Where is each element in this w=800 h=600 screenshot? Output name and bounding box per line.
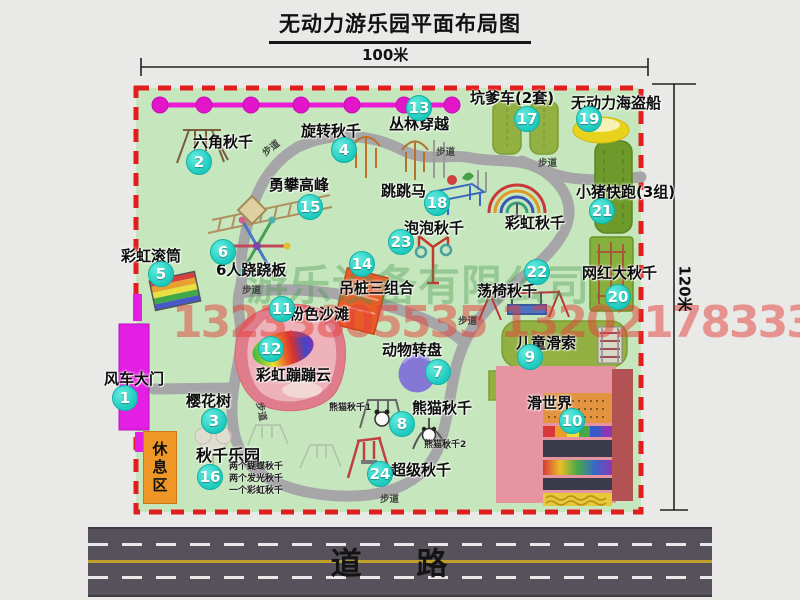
attraction-22-badge: 22 — [524, 259, 550, 285]
label-kart-track: 坑爹车(2套) — [470, 91, 554, 106]
label-super-swing: 超级秋千 — [391, 463, 451, 478]
rest-area-zone: 休息区 — [143, 431, 177, 504]
path-label-4: 步道 — [242, 286, 261, 296]
slide-world-drawing — [496, 366, 633, 506]
path-label-7: 步道 — [380, 495, 399, 505]
attraction-17-badge: 17 — [514, 106, 540, 132]
width-dimension-label: 100米 — [362, 44, 408, 65]
label-rainbow-swing: 彩虹秋千 — [505, 216, 565, 231]
road: 道 路 — [88, 527, 712, 597]
attraction-21-badge: 21 — [589, 198, 615, 224]
attraction-4-badge: 4 — [331, 137, 357, 163]
label-cherry-tree: 樱花树 — [186, 394, 231, 409]
label-climbing-peak: 勇攀高峰 — [269, 178, 329, 193]
label-hexagon-swing: 六角秋千 — [193, 135, 253, 150]
label-jumping-horse: 跳跳马 — [381, 184, 426, 199]
label-swing-chair: 荡椅秋千 — [477, 284, 537, 299]
label-big-swing: 网红大秋千 — [582, 266, 657, 281]
path-label-5: 步道 — [458, 317, 477, 327]
attraction-19-badge: 19 — [576, 106, 602, 132]
attraction-14-badge: 14 — [349, 251, 375, 277]
rest-area-label: 休息区 — [150, 441, 171, 495]
attraction-16-badge: 16 — [197, 464, 223, 490]
height-dimension-label: 120米 — [675, 265, 696, 311]
label-swing-park-item-3: 一个彩虹秋千 — [229, 487, 283, 496]
page-title: 无动力游乐园平面布局图 — [269, 8, 531, 44]
label-bubble-swing: 泡泡秋千 — [404, 221, 464, 236]
label-swing-park-item-1: 两个蝴蝶秋千 — [229, 463, 283, 472]
attraction-24-badge: 24 — [367, 461, 393, 487]
attraction-11-badge: 11 — [269, 296, 295, 322]
path-label-3: 步道 — [538, 159, 557, 169]
attraction-2-badge: 2 — [186, 149, 212, 175]
label-panda-swing-2: 熊猫秋千2 — [424, 441, 466, 450]
label-animal-carousel: 动物转盘 — [382, 343, 442, 358]
path-label-2: 步道 — [436, 148, 455, 158]
road-label: 道 路 — [331, 539, 470, 584]
attraction-7-badge: 7 — [425, 359, 451, 385]
label-rainbow-cloud: 彩虹蹦蹦云 — [256, 368, 331, 383]
label-windmill-gate: 风车大门 — [104, 372, 164, 387]
attraction-10-badge: 10 — [559, 408, 585, 434]
label-panda-swing: 熊猫秋千 — [412, 401, 472, 416]
attraction-6-badge: 6 — [210, 239, 236, 265]
attraction-5-badge: 5 — [148, 261, 174, 287]
attraction-8-badge: 8 — [389, 411, 415, 437]
label-hanging-pile: 吊桩三组合 — [339, 281, 414, 296]
label-rainbow-roller: 彩虹滚筒 — [121, 249, 181, 264]
label-swing-park-item-2: 两个发光秋千 — [229, 475, 283, 484]
attraction-12-badge: 12 — [258, 336, 284, 362]
label-panda-swing-1: 熊猫秋千1 — [329, 404, 371, 413]
attraction-20-badge: 20 — [605, 284, 631, 310]
attraction-13-badge: 13 — [406, 95, 432, 121]
label-pink-beach: 粉色沙滩 — [289, 307, 349, 322]
label-rotating-swing: 旋转秋千 — [301, 124, 361, 139]
attraction-23-badge: 23 — [388, 229, 414, 255]
attraction-9-badge: 9 — [517, 344, 543, 370]
label-seesaw: 6人跷跷板 — [216, 263, 286, 278]
label-piggy-run: 小猪快跑(3组) — [576, 185, 675, 200]
attraction-3-badge: 3 — [201, 408, 227, 434]
park-layout-map: 游乐设备有限公司 13233805535 13202178333 无动力游乐园平… — [0, 0, 800, 600]
attraction-1-badge: 1 — [112, 385, 138, 411]
attraction-18-badge: 18 — [424, 190, 450, 216]
attraction-15-badge: 15 — [297, 194, 323, 220]
